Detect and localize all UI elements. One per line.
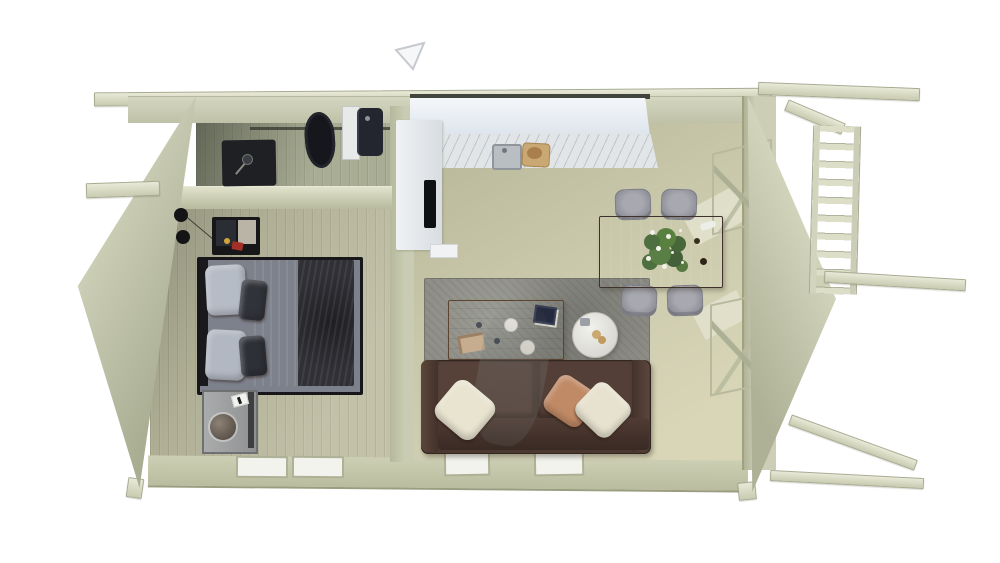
desk-red-item [231,241,243,251]
basin-faucet [365,116,370,121]
desk-paper [238,220,256,244]
bread-loaf [527,147,542,159]
flower-centerpiece-greens [644,234,660,250]
table-dark-item [694,238,700,244]
triangle-arrow-marker [392,38,436,74]
pastry [598,336,606,344]
bed-pillow-dark [238,279,268,321]
cabinet-dark-edge [248,392,254,448]
small-bowl [476,322,482,328]
round-table-lamp [210,414,236,440]
wall-lamp-head [176,230,190,244]
desk-yellow-flower [224,238,230,244]
porch-top-beam [758,82,920,101]
wall-lamp-head [174,208,188,222]
small-lamp-head [242,154,253,165]
protruding-wall-beam [86,181,160,199]
vanity-basin [357,108,383,156]
porch-slatted-railing [810,125,860,294]
bottom-wall-end-nub [126,477,145,499]
flower-centerpiece-petals [650,230,655,235]
sink-faucet [502,148,507,153]
bed-pillow-dark [238,335,267,377]
bedroom-window [292,456,344,478]
counter-end-cap [430,244,458,258]
dining-chair [620,284,658,317]
kitchen-upper-cabinets [410,98,650,136]
dining-chair [666,284,703,316]
bedroom-window [236,456,288,478]
porch-bottom-beam [770,470,924,489]
porch-diagonal-beam [788,414,918,470]
black-cooktop [424,180,436,228]
table-dark-item [700,258,707,265]
kitchen-sink [492,144,522,170]
gray-item [580,318,590,326]
bed-duvet-dark [298,260,354,386]
floorplan-render [0,0,1000,563]
